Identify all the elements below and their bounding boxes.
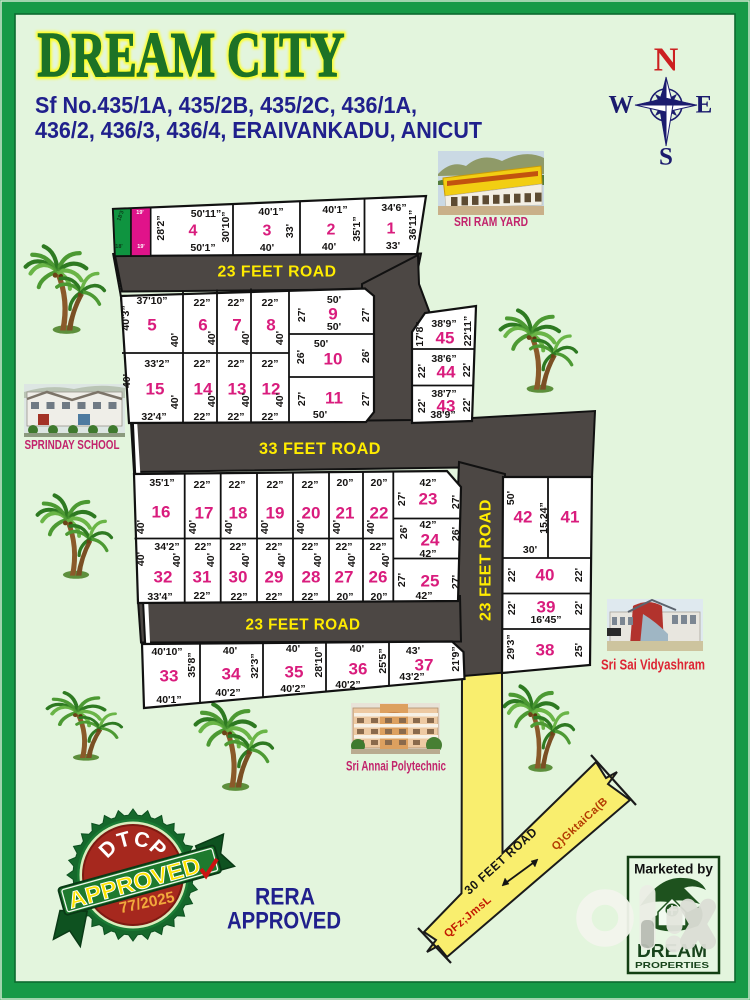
svg-text:50': 50' — [313, 409, 327, 421]
svg-text:40': 40' — [135, 552, 147, 566]
svg-text:30'10”: 30'10” — [220, 211, 232, 242]
svg-text:40'3”: 40'3” — [120, 305, 132, 330]
svg-text:436/2, 436/3, 436/4, ERAIVANKA: 436/2, 436/3, 436/4, ERAIVANKADU, ANICUT — [35, 117, 482, 143]
svg-text:22”: 22” — [231, 591, 248, 603]
svg-text:N: N — [654, 42, 679, 79]
svg-text:26': 26' — [295, 350, 307, 364]
svg-text:27': 27' — [296, 392, 308, 406]
svg-text:40': 40' — [169, 395, 181, 409]
svg-text:21: 21 — [336, 504, 355, 523]
svg-text:22”: 22” — [194, 297, 211, 309]
svg-text:E: E — [696, 92, 713, 119]
svg-text:44: 44 — [437, 363, 456, 382]
svg-text:22': 22' — [416, 364, 428, 378]
svg-text:28'2”: 28'2” — [155, 215, 167, 240]
svg-text:40'1”: 40'1” — [258, 206, 283, 218]
svg-text:33': 33' — [284, 224, 296, 238]
svg-text:19': 19' — [137, 244, 145, 250]
svg-text:23 FEET ROAD: 23 FEET ROAD — [218, 264, 337, 281]
svg-text:40': 40' — [322, 241, 336, 253]
svg-text:W: W — [609, 92, 634, 119]
svg-text:50': 50' — [314, 338, 328, 350]
svg-text:Marketed by: Marketed by — [634, 862, 713, 877]
svg-text:38'7”: 38'7” — [431, 388, 456, 400]
svg-text:22”: 22” — [267, 479, 284, 491]
svg-text:22”: 22” — [229, 479, 246, 491]
svg-text:22”: 22” — [194, 358, 211, 370]
svg-text:38: 38 — [536, 641, 555, 660]
svg-text:27': 27' — [450, 575, 462, 589]
svg-text:40': 40' — [259, 520, 271, 534]
svg-text:20”: 20” — [337, 591, 354, 603]
svg-text:43'2”: 43'2” — [399, 671, 424, 683]
svg-text:45: 45 — [436, 329, 455, 348]
svg-text:35: 35 — [285, 663, 304, 682]
svg-text:Sf No.435/1A, 435/2B, 435/2C,: Sf No.435/1A, 435/2B, 435/2C, 436/1A, — [35, 92, 417, 118]
svg-text:20: 20 — [302, 504, 321, 523]
svg-text:25'5”: 25'5” — [377, 648, 389, 673]
svg-text:50'11”: 50'11” — [191, 208, 222, 220]
svg-text:40': 40' — [295, 520, 307, 534]
svg-text:23 FEET ROAD: 23 FEET ROAD — [478, 499, 495, 621]
svg-text:1: 1 — [387, 221, 396, 238]
svg-text:24: 24 — [421, 531, 440, 550]
svg-text:28: 28 — [302, 568, 321, 587]
svg-text:40': 40' — [312, 553, 324, 567]
svg-text:11: 11 — [325, 389, 343, 408]
svg-text:27': 27' — [396, 492, 408, 506]
svg-text:19: 19 — [266, 504, 285, 523]
svg-text:33 FEET ROAD: 33 FEET ROAD — [259, 440, 381, 458]
svg-text:31: 31 — [193, 568, 212, 587]
svg-text:23: 23 — [419, 490, 438, 509]
svg-text:40'2”: 40'2” — [280, 683, 305, 695]
svg-text:27': 27' — [360, 392, 372, 406]
svg-text:40': 40' — [274, 331, 286, 345]
svg-text:42”: 42” — [420, 548, 437, 560]
svg-text:40': 40' — [240, 393, 252, 407]
svg-text:22”: 22” — [302, 541, 319, 553]
svg-text:22”: 22” — [228, 297, 245, 309]
svg-text:27: 27 — [335, 568, 354, 587]
svg-text:APPROVED: APPROVED — [227, 908, 341, 935]
svg-text:22': 22' — [461, 398, 473, 412]
svg-text:40: 40 — [536, 566, 555, 585]
svg-text:37'10”: 37'10” — [136, 295, 167, 307]
svg-text:Sri Annai Polytechnic: Sri Annai Polytechnic — [346, 759, 446, 774]
svg-text:27': 27' — [450, 495, 462, 509]
svg-text:22”: 22” — [302, 479, 319, 491]
svg-text:10: 10 — [324, 350, 343, 369]
svg-text:22”: 22” — [262, 358, 279, 370]
svg-text:40': 40' — [223, 645, 237, 657]
svg-text:32'3”: 32'3” — [249, 653, 261, 678]
svg-text:26': 26' — [398, 525, 410, 539]
svg-text:22': 22' — [461, 363, 473, 377]
svg-text:50'1”: 50'1” — [190, 242, 215, 254]
svg-text:21'9”: 21'9” — [450, 646, 462, 671]
svg-text:50': 50' — [327, 321, 341, 333]
svg-text:33'4”: 33'4” — [147, 591, 172, 603]
svg-text:22”: 22” — [266, 591, 283, 603]
svg-text:50': 50' — [505, 491, 517, 505]
svg-text:22”: 22” — [195, 541, 212, 553]
svg-text:22”: 22” — [262, 411, 279, 423]
svg-text:29: 29 — [265, 568, 284, 587]
svg-text:22”: 22” — [228, 358, 245, 370]
svg-text:22: 22 — [370, 504, 389, 523]
svg-text:2: 2 — [327, 222, 336, 239]
svg-text:3: 3 — [263, 223, 272, 240]
svg-text:40': 40' — [274, 393, 286, 407]
svg-text:40': 40' — [121, 374, 133, 388]
svg-text:22”: 22” — [194, 479, 211, 491]
svg-text:42”: 42” — [420, 477, 437, 489]
svg-text:4: 4 — [189, 223, 198, 240]
svg-text:22': 22' — [506, 568, 518, 582]
svg-text:19': 19' — [136, 210, 144, 216]
svg-text:5: 5 — [147, 316, 156, 335]
svg-text:32: 32 — [154, 568, 173, 587]
svg-text:35'1”: 35'1” — [149, 477, 174, 489]
svg-text:16'45”: 16'45” — [530, 614, 561, 626]
svg-text:42”: 42” — [416, 590, 433, 602]
svg-text:42”: 42” — [420, 519, 437, 531]
svg-text:30': 30' — [523, 544, 537, 556]
svg-text:Sri Sai Vidyashram: Sri Sai Vidyashram — [601, 657, 705, 674]
svg-text:42: 42 — [514, 508, 533, 527]
svg-text:26: 26 — [369, 568, 388, 587]
svg-text:DREAM CITY: DREAM CITY — [38, 20, 345, 90]
svg-text:34'6”: 34'6” — [381, 202, 406, 214]
svg-text:29'3”: 29'3” — [505, 634, 517, 659]
svg-text:40': 40' — [331, 520, 343, 534]
svg-text:40': 40' — [205, 553, 217, 567]
svg-text:40': 40' — [206, 331, 218, 345]
svg-text:S: S — [659, 144, 673, 171]
svg-text:40': 40' — [346, 553, 358, 567]
svg-text:35'8”: 35'8” — [186, 652, 198, 677]
svg-text:40': 40' — [169, 333, 181, 347]
svg-text:22”: 22” — [336, 541, 353, 553]
svg-text:22”: 22” — [228, 411, 245, 423]
svg-text:22': 22' — [506, 601, 518, 615]
svg-text:40': 40' — [286, 643, 300, 655]
svg-text:22”: 22” — [266, 541, 283, 553]
svg-text:18': 18' — [115, 244, 123, 250]
svg-text:22”: 22” — [262, 297, 279, 309]
svg-text:40': 40' — [135, 520, 147, 534]
svg-text:40': 40' — [380, 553, 392, 567]
svg-text:40'1”: 40'1” — [156, 694, 181, 706]
svg-text:30: 30 — [229, 568, 248, 587]
svg-text:40': 40' — [223, 520, 235, 534]
svg-text:22': 22' — [573, 601, 585, 615]
svg-text:22': 22' — [573, 568, 585, 582]
svg-text:28'10”: 28'10” — [313, 646, 325, 677]
svg-text:34'2”: 34'2” — [154, 541, 179, 553]
svg-text:26': 26' — [450, 527, 462, 541]
svg-text:36'11”: 36'11” — [407, 210, 419, 241]
svg-text:40': 40' — [206, 393, 218, 407]
svg-text:17'8”: 17'8” — [414, 321, 426, 346]
svg-text:27': 27' — [360, 308, 372, 322]
svg-text:40': 40' — [240, 553, 252, 567]
svg-text:27': 27' — [296, 308, 308, 322]
svg-text:38'9”: 38'9” — [430, 409, 455, 421]
svg-text:22'11”: 22'11” — [462, 316, 474, 347]
svg-text:27': 27' — [396, 573, 408, 587]
svg-text:40'2”: 40'2” — [335, 679, 360, 691]
svg-text:38'9”: 38'9” — [431, 318, 456, 330]
svg-text:17: 17 — [195, 504, 214, 523]
svg-text:SPRINDAY SCHOOL: SPRINDAY SCHOOL — [25, 438, 120, 452]
svg-text:32'4”: 32'4” — [141, 411, 166, 423]
svg-text:25': 25' — [573, 643, 585, 657]
svg-text:26': 26' — [360, 349, 372, 363]
svg-text:50': 50' — [327, 294, 341, 306]
svg-text:33': 33' — [386, 240, 400, 252]
svg-text:40': 40' — [365, 520, 377, 534]
svg-text:34: 34 — [222, 665, 241, 684]
svg-text:PROPERTIES: PROPERTIES — [635, 960, 709, 970]
svg-text:40': 40' — [276, 553, 288, 567]
svg-text:16: 16 — [152, 503, 171, 522]
svg-text:38'6”: 38'6” — [431, 353, 456, 365]
svg-text:20”: 20” — [371, 477, 388, 489]
svg-text:22”: 22” — [194, 411, 211, 423]
svg-text:22”: 22” — [230, 541, 247, 553]
svg-text:40': 40' — [187, 520, 199, 534]
svg-text:40': 40' — [240, 331, 252, 345]
svg-text:22”: 22” — [370, 541, 387, 553]
svg-text:SRI RAM YARD: SRI RAM YARD — [454, 215, 528, 229]
svg-text:20”: 20” — [337, 477, 354, 489]
svg-text:25: 25 — [421, 572, 440, 591]
svg-text:22”: 22” — [302, 591, 319, 603]
svg-text:40'10”: 40'10” — [151, 646, 182, 658]
svg-text:40': 40' — [350, 643, 364, 655]
svg-text:43': 43' — [406, 645, 420, 657]
svg-text:RERA: RERA — [255, 884, 315, 911]
svg-text:18: 18 — [229, 504, 248, 523]
svg-text:40'1”: 40'1” — [322, 204, 347, 216]
svg-text:33: 33 — [160, 667, 179, 686]
svg-text:35'1”: 35'1” — [351, 216, 363, 241]
svg-text:36: 36 — [349, 660, 368, 679]
svg-text:40': 40' — [171, 553, 183, 567]
svg-text:15.24”: 15.24” — [538, 502, 550, 534]
svg-text:23 FEET ROAD: 23 FEET ROAD — [246, 617, 361, 634]
svg-text:40'2”: 40'2” — [215, 687, 240, 699]
svg-text:22': 22' — [416, 399, 428, 413]
svg-text:20”: 20” — [371, 591, 388, 603]
svg-text:22”: 22” — [194, 590, 211, 602]
svg-text:41: 41 — [561, 508, 580, 527]
svg-text:15: 15 — [146, 380, 165, 399]
svg-text:40': 40' — [260, 242, 274, 254]
svg-text:33'2”: 33'2” — [144, 358, 169, 370]
